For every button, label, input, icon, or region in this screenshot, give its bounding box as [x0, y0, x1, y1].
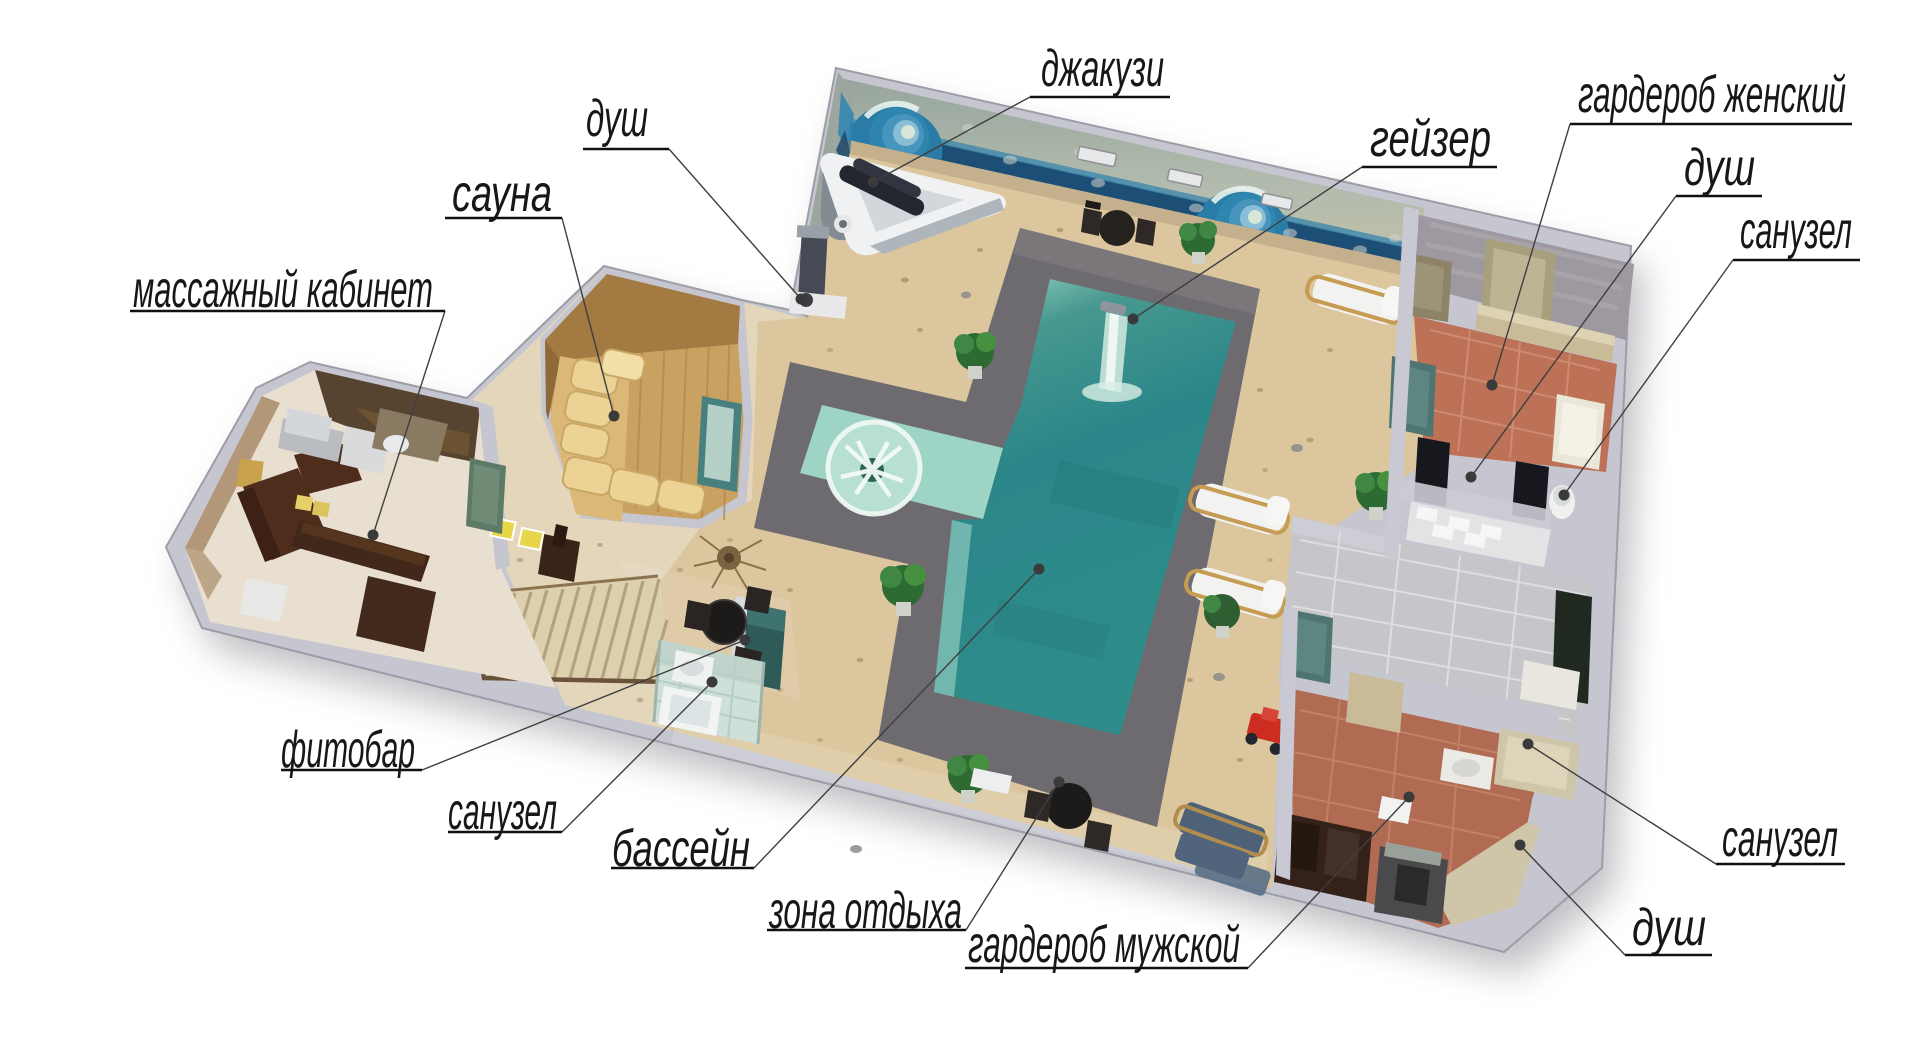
svg-text:санузел: санузел	[1740, 202, 1852, 260]
svg-text:гардероб женский: гардероб женский	[1578, 66, 1846, 124]
svg-text:душ: душ	[586, 90, 648, 148]
svg-text:джакузи: джакузи	[1041, 40, 1164, 98]
svg-text:сауна: сауна	[452, 165, 552, 223]
svg-text:гейзер: гейзер	[1370, 110, 1491, 168]
svg-text:гардероб мужской: гардероб мужской	[968, 916, 1240, 974]
svg-text:душ: душ	[1632, 899, 1706, 957]
svg-text:душ: душ	[1684, 139, 1755, 197]
svg-text:санузел: санузел	[1722, 810, 1838, 868]
